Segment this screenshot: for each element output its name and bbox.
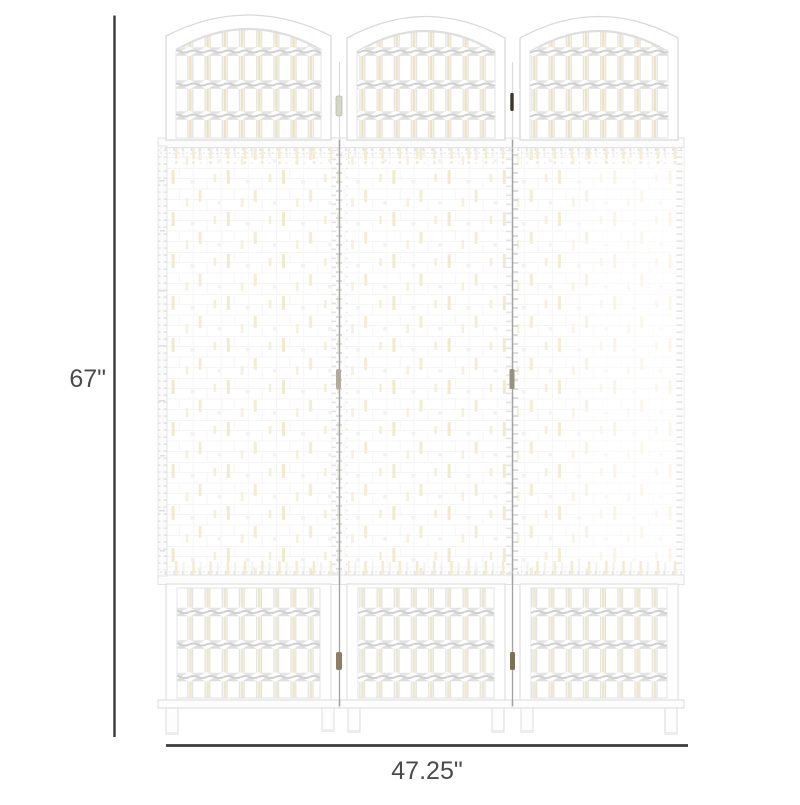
svg-text:67": 67": [69, 365, 106, 393]
svg-text:47.25": 47.25": [391, 757, 462, 785]
